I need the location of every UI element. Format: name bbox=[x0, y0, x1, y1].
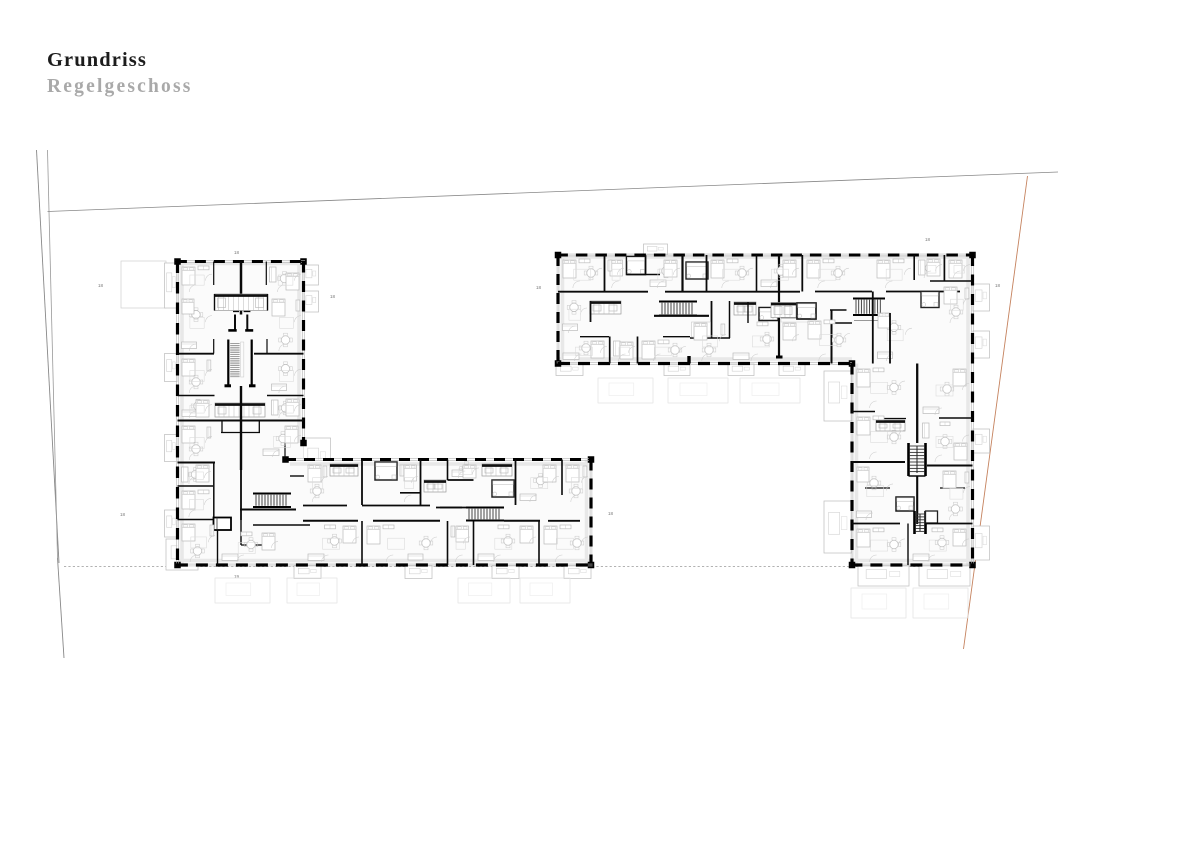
svg-text:18: 18 bbox=[995, 283, 1001, 288]
svg-text:18: 18 bbox=[234, 250, 240, 255]
svg-text:18: 18 bbox=[608, 511, 614, 516]
svg-text:18: 18 bbox=[536, 285, 542, 290]
svg-text:18: 18 bbox=[925, 237, 931, 242]
svg-text:18: 18 bbox=[330, 294, 336, 299]
svg-text:18: 18 bbox=[98, 283, 104, 288]
svg-text:18: 18 bbox=[120, 512, 126, 517]
